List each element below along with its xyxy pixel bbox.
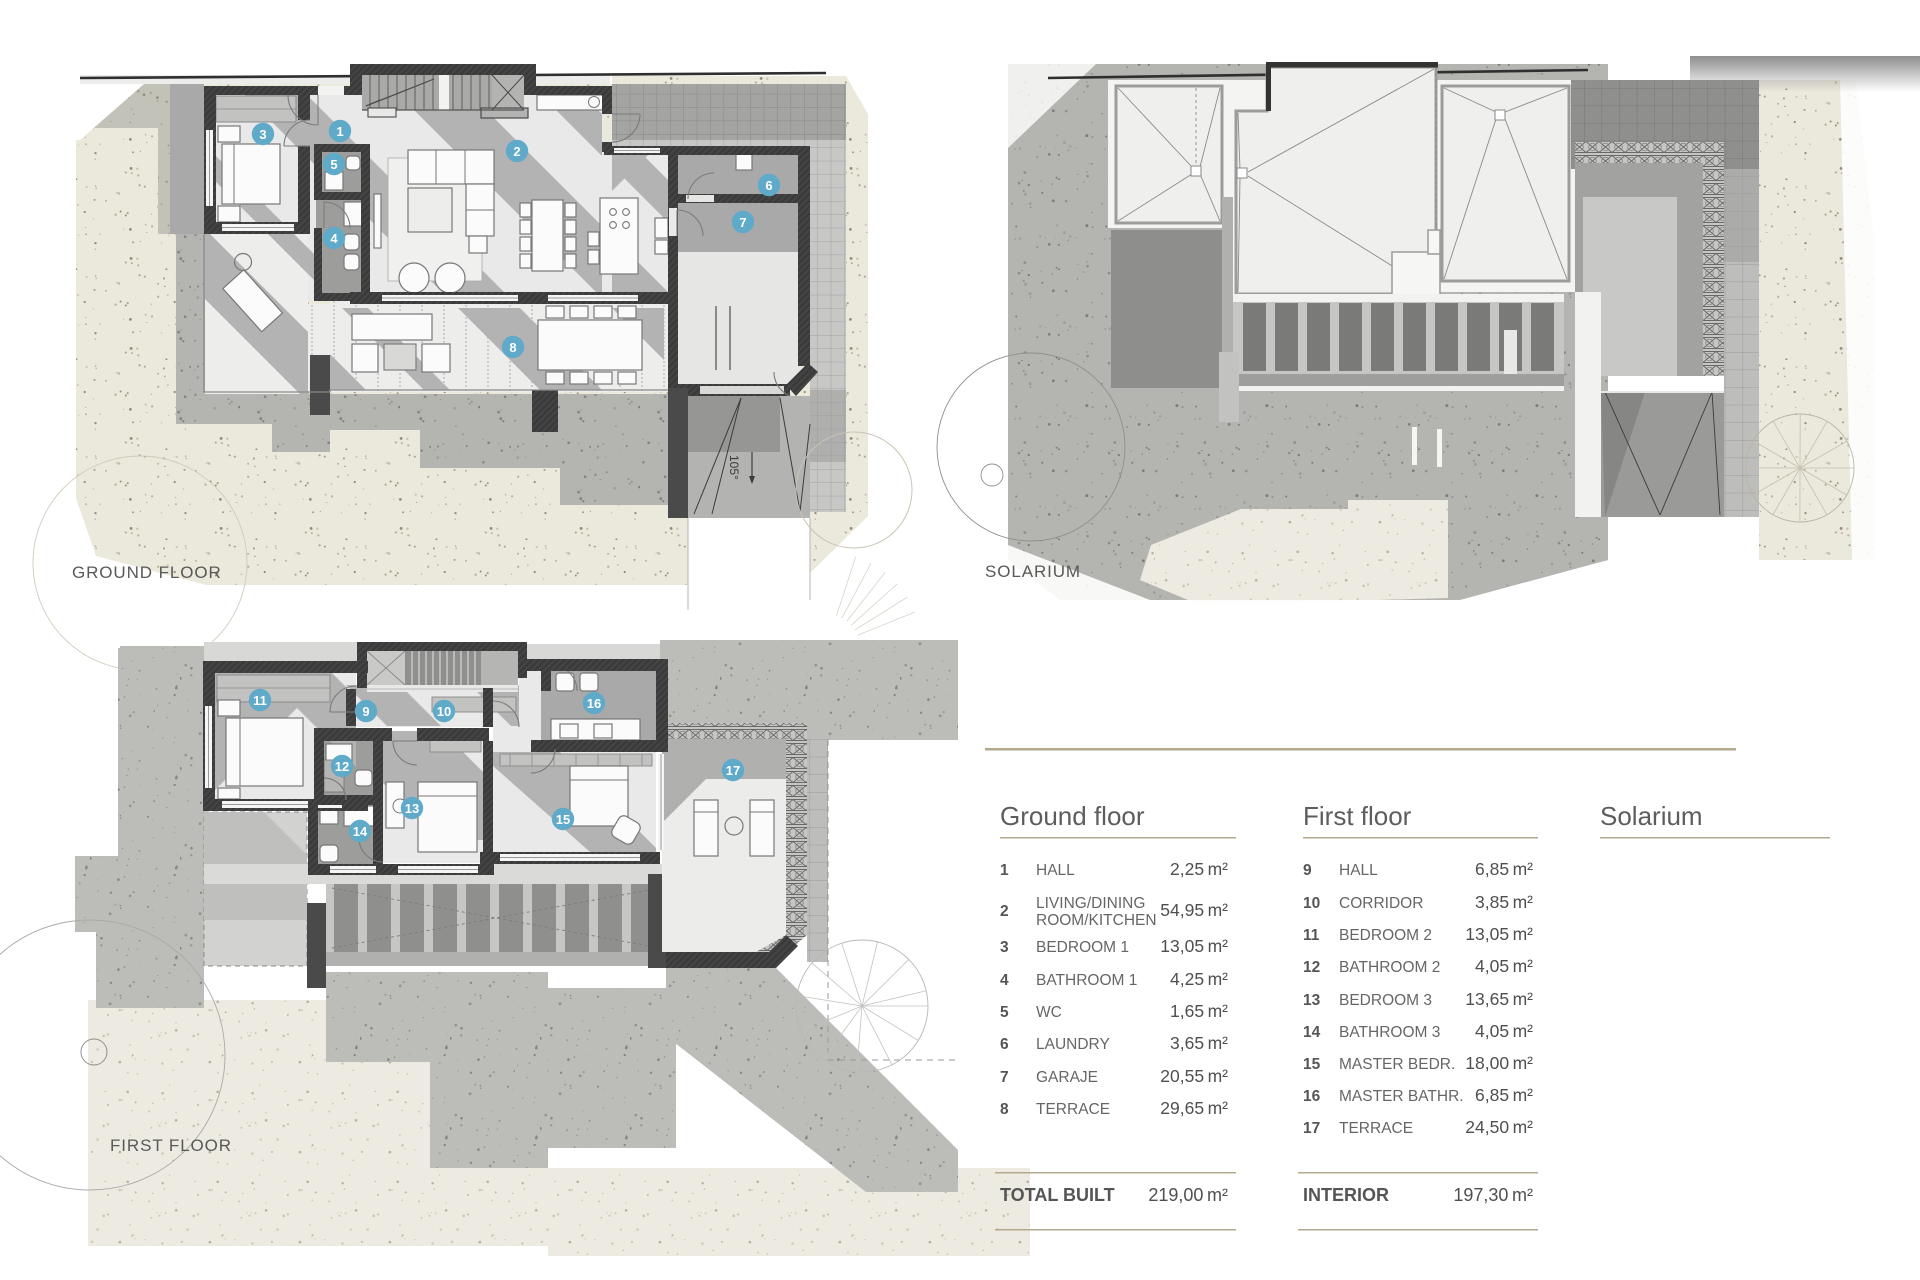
svg-text:11: 11	[1303, 927, 1320, 944]
svg-text:7: 7	[1000, 1069, 1009, 1086]
svg-text:TERRACE: TERRACE	[1036, 1101, 1110, 1118]
svg-text:2,25 m²: 2,25 m²	[1170, 859, 1228, 879]
svg-text:11: 11	[253, 693, 267, 708]
svg-text:FIRST FLOOR: FIRST FLOOR	[110, 1136, 232, 1155]
svg-text:12: 12	[335, 759, 349, 774]
svg-text:13: 13	[1303, 992, 1321, 1009]
svg-text:13,05 m²: 13,05 m²	[1160, 936, 1228, 956]
svg-text:10: 10	[1303, 895, 1320, 912]
svg-text:1,65 m²: 1,65 m²	[1170, 1001, 1228, 1021]
svg-text:4: 4	[1000, 972, 1009, 989]
svg-text:197,30 m²: 197,30 m²	[1453, 1185, 1533, 1205]
svg-text:13: 13	[405, 801, 419, 816]
svg-text:4,05 m²: 4,05 m²	[1475, 1021, 1533, 1041]
svg-text:219,00 m²: 219,00 m²	[1148, 1185, 1228, 1205]
svg-text:18,00 m²: 18,00 m²	[1465, 1053, 1533, 1073]
svg-text:BATHROOM 2: BATHROOM 2	[1339, 959, 1440, 976]
svg-text:13,65 m²: 13,65 m²	[1465, 989, 1533, 1009]
svg-text:BEDROOM 1: BEDROOM 1	[1036, 939, 1129, 956]
svg-text:SOLARIUM: SOLARIUM	[985, 562, 1081, 581]
svg-text:13,05 m²: 13,05 m²	[1465, 924, 1533, 944]
svg-text:LAUNDRY: LAUNDRY	[1036, 1036, 1110, 1053]
svg-text:MASTER BATHR.: MASTER BATHR.	[1339, 1088, 1464, 1105]
svg-text:9: 9	[362, 704, 369, 719]
svg-text:3,85 m²: 3,85 m²	[1475, 892, 1533, 912]
svg-text:6: 6	[1000, 1036, 1009, 1053]
svg-text:6: 6	[765, 178, 772, 193]
svg-text:12: 12	[1303, 959, 1320, 976]
svg-text:14: 14	[1303, 1024, 1321, 1041]
svg-text:7: 7	[739, 215, 746, 230]
svg-text:2: 2	[1000, 903, 1009, 920]
svg-text:2: 2	[513, 144, 520, 159]
svg-text:20,55 m²: 20,55 m²	[1160, 1066, 1228, 1086]
svg-text:1: 1	[1000, 862, 1009, 879]
svg-text:54,95 m²: 54,95 m²	[1160, 900, 1228, 920]
svg-text:INTERIOR: INTERIOR	[1303, 1185, 1389, 1205]
svg-text:105°: 105°	[727, 455, 741, 480]
svg-text:3: 3	[1000, 939, 1009, 956]
svg-text:ROOM/KITCHEN: ROOM/KITCHEN	[1036, 912, 1157, 929]
svg-text:Solarium: Solarium	[1600, 801, 1703, 831]
svg-text:15: 15	[556, 812, 570, 827]
svg-text:BEDROOM 3: BEDROOM 3	[1339, 992, 1432, 1009]
svg-text:LIVING/DINING: LIVING/DINING	[1036, 895, 1145, 912]
svg-text:4,25 m²: 4,25 m²	[1170, 969, 1228, 989]
svg-text:GARAJE: GARAJE	[1036, 1069, 1098, 1086]
svg-text:BATHROOM 1: BATHROOM 1	[1036, 972, 1137, 989]
svg-text:29,65 m²: 29,65 m²	[1160, 1098, 1228, 1118]
svg-text:Ground floor: Ground floor	[1000, 801, 1145, 831]
svg-text:6,85 m²: 6,85 m²	[1475, 1085, 1533, 1105]
svg-text:1: 1	[336, 124, 343, 139]
svg-text:WC: WC	[1036, 1004, 1062, 1021]
svg-text:17: 17	[726, 763, 740, 778]
svg-text:15: 15	[1303, 1056, 1321, 1073]
svg-text:HALL: HALL	[1036, 862, 1075, 879]
svg-text:17: 17	[1303, 1120, 1320, 1137]
svg-text:8: 8	[1000, 1101, 1009, 1118]
svg-text:3: 3	[259, 127, 266, 142]
svg-text:9: 9	[1303, 862, 1312, 879]
svg-text:TERRACE: TERRACE	[1339, 1120, 1413, 1137]
svg-text:MASTER BEDR.: MASTER BEDR.	[1339, 1056, 1455, 1073]
svg-text:First floor: First floor	[1303, 801, 1412, 831]
svg-text:24,50 m²: 24,50 m²	[1465, 1117, 1533, 1137]
svg-text:5: 5	[330, 157, 337, 172]
svg-text:4,05 m²: 4,05 m²	[1475, 956, 1533, 976]
svg-text:CORRIDOR: CORRIDOR	[1339, 895, 1423, 912]
svg-text:HALL: HALL	[1339, 862, 1378, 879]
svg-text:3,65 m²: 3,65 m²	[1170, 1033, 1228, 1053]
svg-text:16: 16	[587, 696, 601, 711]
svg-text:14: 14	[353, 824, 368, 839]
svg-text:5: 5	[1000, 1004, 1009, 1021]
svg-text:BATHROOM 3: BATHROOM 3	[1339, 1024, 1440, 1041]
svg-text:GROUND FLOOR: GROUND FLOOR	[72, 563, 222, 582]
svg-text:8: 8	[509, 340, 516, 355]
svg-text:16: 16	[1303, 1088, 1321, 1105]
svg-text:4: 4	[330, 231, 338, 246]
svg-text:10: 10	[437, 704, 451, 719]
svg-text:BEDROOM 2: BEDROOM 2	[1339, 927, 1432, 944]
svg-text:6,85 m²: 6,85 m²	[1475, 859, 1533, 879]
svg-text:TOTAL BUILT: TOTAL BUILT	[1000, 1185, 1115, 1205]
